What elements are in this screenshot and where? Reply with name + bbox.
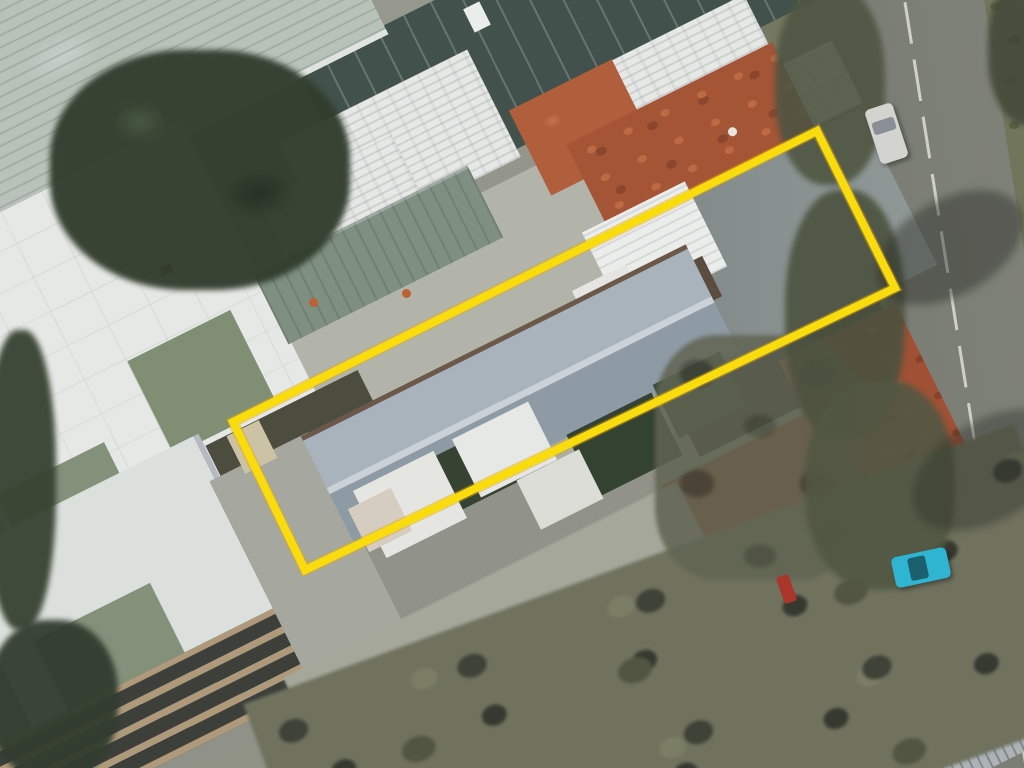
aerial-photo [0, 0, 1024, 768]
trees-left-edge [0, 330, 56, 630]
chimney-dot [727, 126, 739, 138]
trees-bottom-left [0, 620, 118, 768]
aerial-photo-scene [0, 0, 1024, 768]
car-windshield [871, 116, 897, 135]
street-trees-1 [775, 0, 885, 185]
small-orange-object-1 [402, 289, 411, 298]
car-windshield [907, 555, 929, 581]
trees-top-left [50, 50, 350, 290]
small-orange-object-2 [309, 298, 318, 307]
